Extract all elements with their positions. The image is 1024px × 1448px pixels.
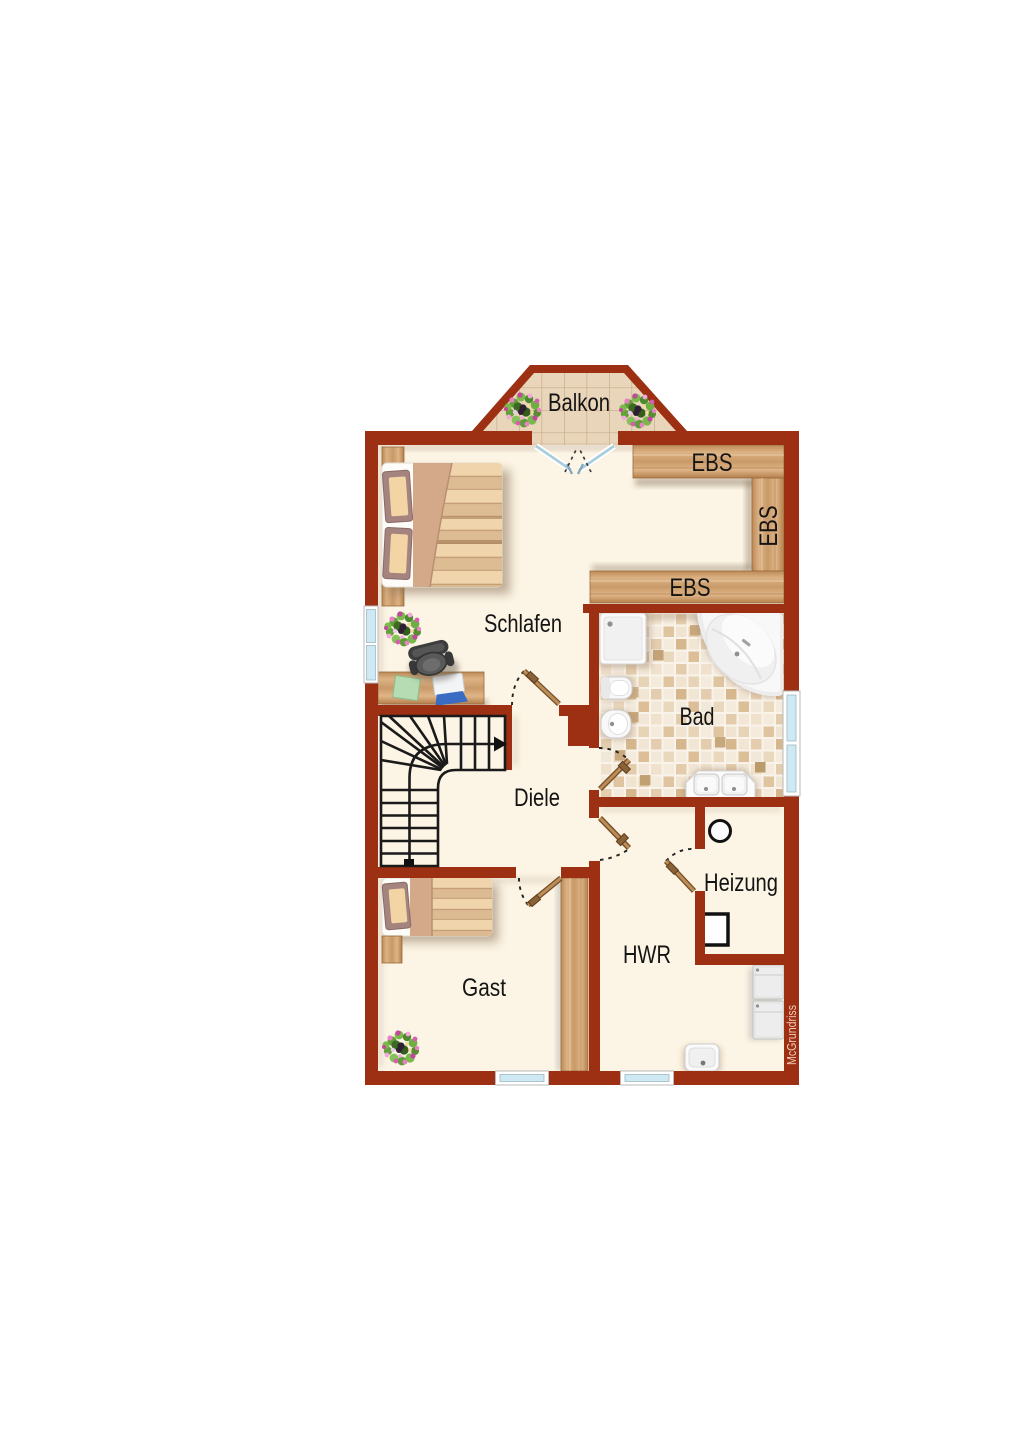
svg-text:Gast: Gast [462,974,506,1002]
svg-text:EBS: EBS [670,574,711,602]
svg-text:McGrundriss: McGrundriss [784,1005,799,1065]
svg-text:Heizung: Heizung [704,869,778,897]
svg-text:EBS: EBS [692,449,733,477]
svg-text:HWR: HWR [623,941,671,969]
svg-text:Schlafen: Schlafen [484,610,562,638]
svg-text:EBS: EBS [755,506,783,547]
svg-text:Bad: Bad [680,703,715,731]
svg-text:Diele: Diele [514,784,560,812]
svg-text:Balkon: Balkon [548,389,610,417]
